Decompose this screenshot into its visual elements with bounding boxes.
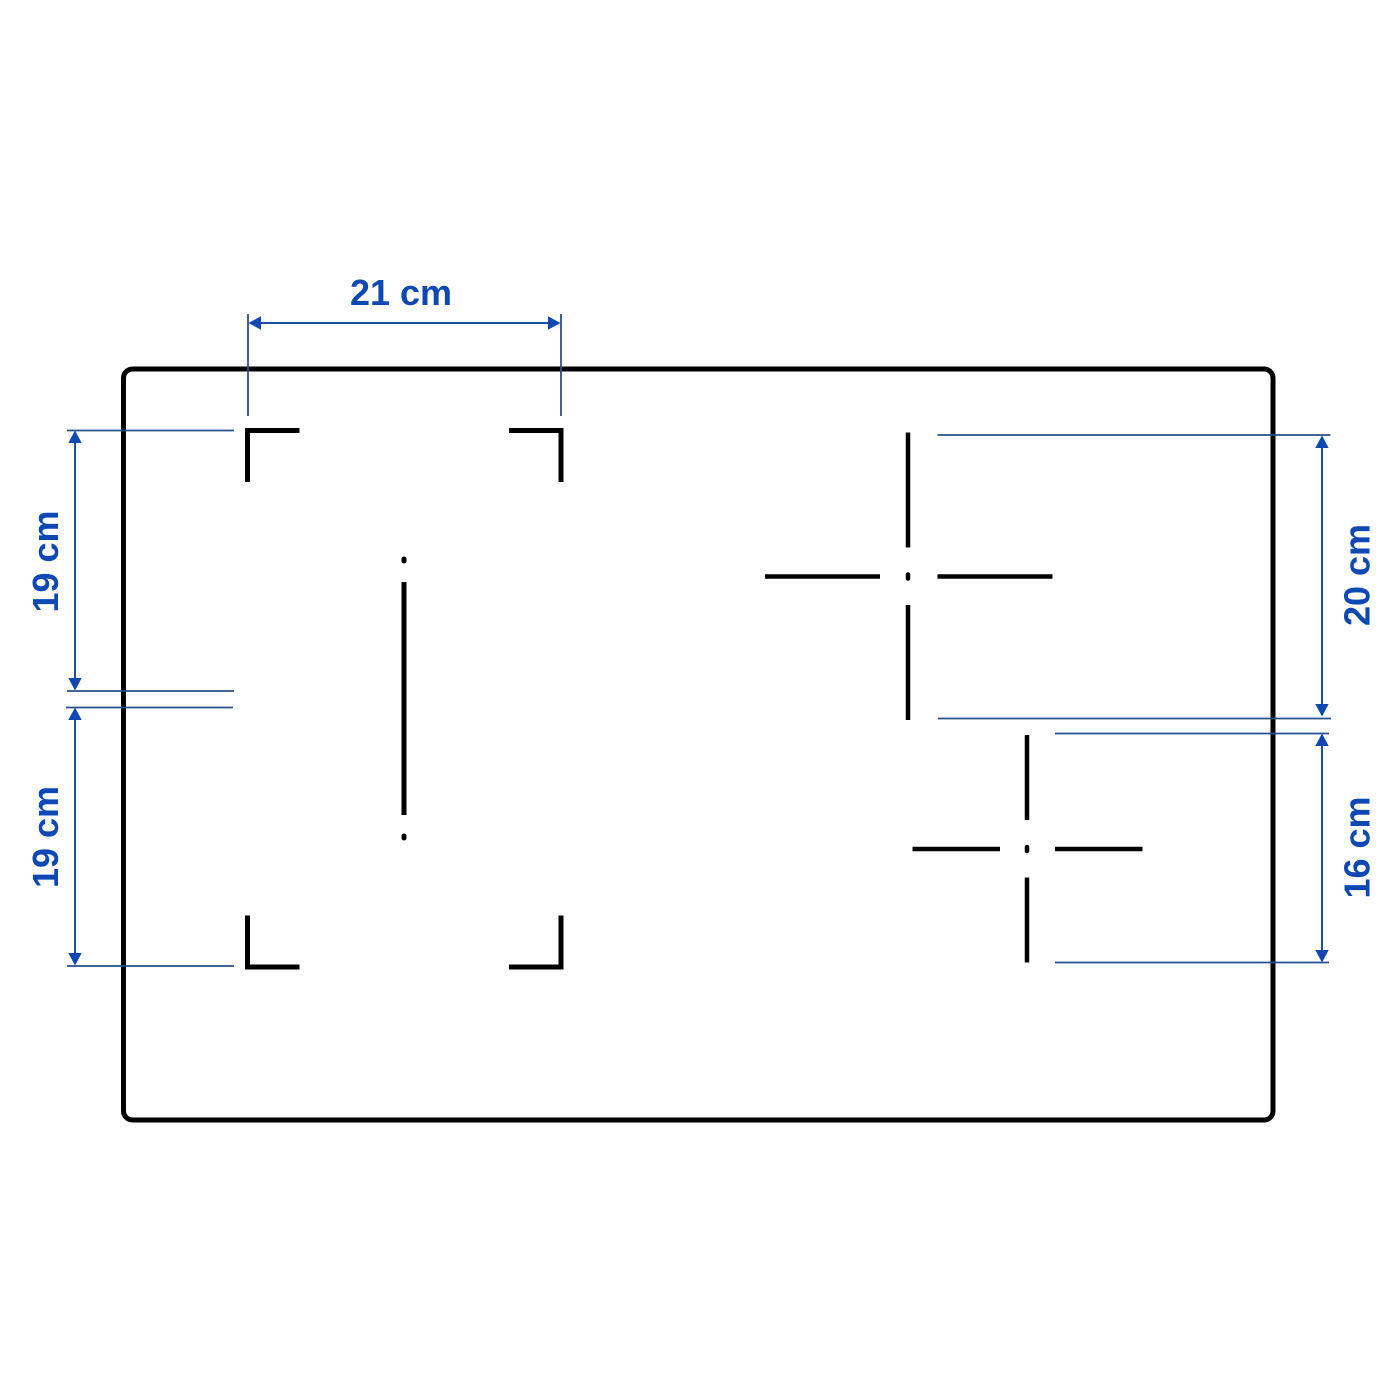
svg-text:21 cm: 21 cm: [350, 272, 452, 313]
svg-text:16 cm: 16 cm: [1336, 796, 1377, 898]
svg-text:20 cm: 20 cm: [1336, 524, 1377, 626]
svg-text:19 cm: 19 cm: [25, 786, 66, 888]
svg-text:19 cm: 19 cm: [25, 510, 66, 612]
